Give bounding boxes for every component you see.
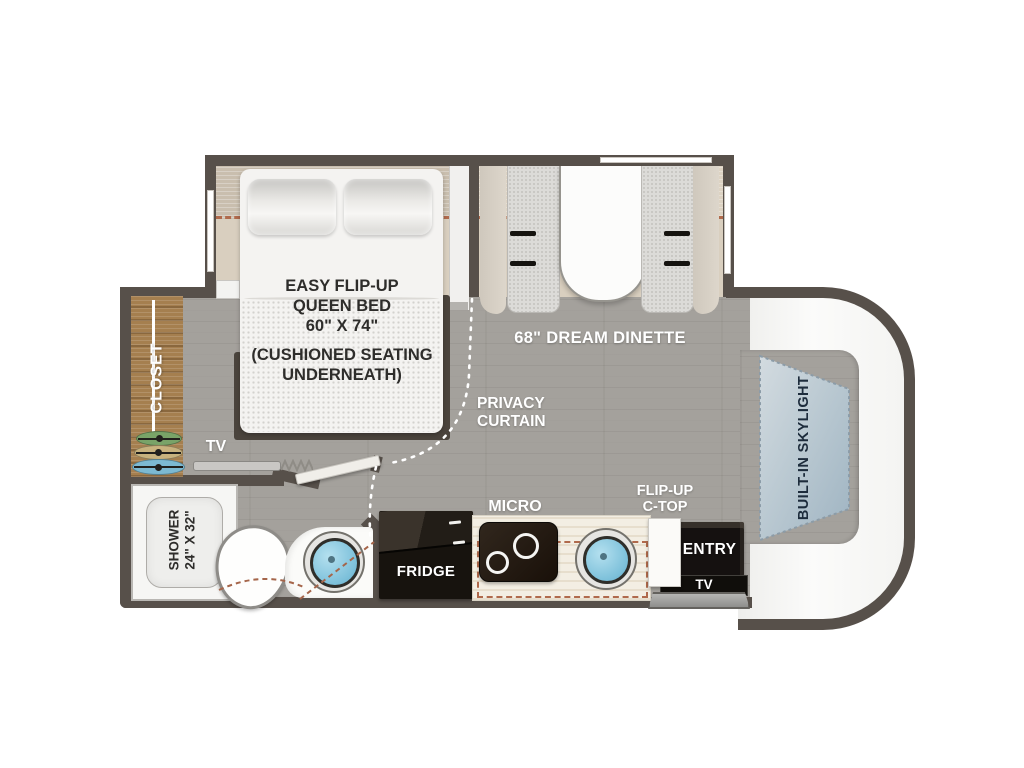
bed-label-line5: UNDERNEATH): [246, 365, 438, 385]
dinette-label: 68" DREAM DINETTE: [505, 329, 695, 348]
dinette-table: [559, 166, 647, 302]
shower-label-line2: 24" X 32": [182, 510, 198, 571]
shower-label-line1: SHOWER: [166, 510, 182, 571]
hanging-clothes-green: [136, 431, 182, 446]
flip-up-counter: [648, 518, 681, 587]
bed-label-line1: EASY FLIP-UP: [246, 276, 438, 296]
dinette-window-top: [600, 157, 712, 163]
bedroom-tv-label: TV: [196, 438, 236, 456]
bedroom-window: [207, 190, 214, 272]
bedroom-tv: [193, 461, 281, 471]
privacy-label-line2: CURTAIN: [477, 413, 546, 431]
wall-left: [120, 287, 131, 608]
bath-sink-bowl: [310, 538, 360, 588]
flip-up-label-line2: C-TOP: [627, 499, 703, 515]
dinette-window-right: [724, 186, 731, 274]
closet-label-wrap: CLOSET: [131, 318, 183, 438]
flip-up-label: FLIP-UP C-TOP: [627, 483, 703, 515]
kitchen-sink-drain: [600, 553, 607, 560]
entry-stairwell: ENTRY: [675, 522, 744, 576]
bed-slide-landing: [216, 280, 240, 299]
bath-sink-drain: [328, 556, 335, 563]
shower-label-wrap: SHOWER 24" X 32": [135, 490, 229, 590]
seatbelt: [664, 261, 690, 266]
dinette-backrest-left: [480, 166, 506, 314]
privacy-label-line1: PRIVACY: [477, 395, 546, 413]
bed-label-line4: (CUSHIONED SEATING: [246, 345, 438, 365]
hanging-clothes-blue: [132, 459, 185, 475]
privacy-curtain-label: PRIVACY CURTAIN: [477, 395, 546, 431]
skylight-label: BUILT-IN SKYLIGHT: [797, 376, 813, 520]
entry-step: [648, 592, 750, 609]
burner-large: [513, 533, 539, 559]
skylight-label-wrap: BUILT-IN SKYLIGHT: [757, 353, 852, 543]
micro-label: MICRO: [470, 498, 560, 516]
kitchen-sink-bowl: [583, 536, 631, 584]
dinette-backrest-right: [693, 166, 719, 314]
seatbelt: [664, 231, 690, 236]
flip-up-label-line1: FLIP-UP: [627, 483, 703, 499]
pillow-left: [248, 179, 336, 235]
closet-label: CLOSET: [148, 343, 166, 414]
fridge: FRIDGE: [379, 511, 473, 599]
entry-label: ENTRY: [675, 541, 744, 559]
burner-small: [486, 551, 509, 574]
fridge-label: FRIDGE: [379, 563, 473, 580]
seatbelt: [510, 231, 536, 236]
bed-side-cabinet-cap: [449, 302, 468, 310]
dinette-bench-left: [507, 166, 560, 313]
bed-label: EASY FLIP-UP QUEEN BED 60" X 74" (CUSHIO…: [246, 276, 438, 385]
seatbelt: [510, 261, 536, 266]
bed-label-line2: QUEEN BED: [246, 296, 438, 316]
bed-side-cabinet: [449, 166, 469, 310]
dinette-bench-right: [641, 166, 694, 313]
rv-floorplan: BUILT-IN SKYLIGHT EASY FLIP-UP QUEEN BED…: [0, 0, 1024, 768]
hanging-clothes-tan: [134, 445, 183, 460]
pillow-right: [344, 179, 432, 235]
fridge-top-facet: [379, 511, 473, 554]
bed-label-line3: 60" X 74": [246, 316, 438, 336]
